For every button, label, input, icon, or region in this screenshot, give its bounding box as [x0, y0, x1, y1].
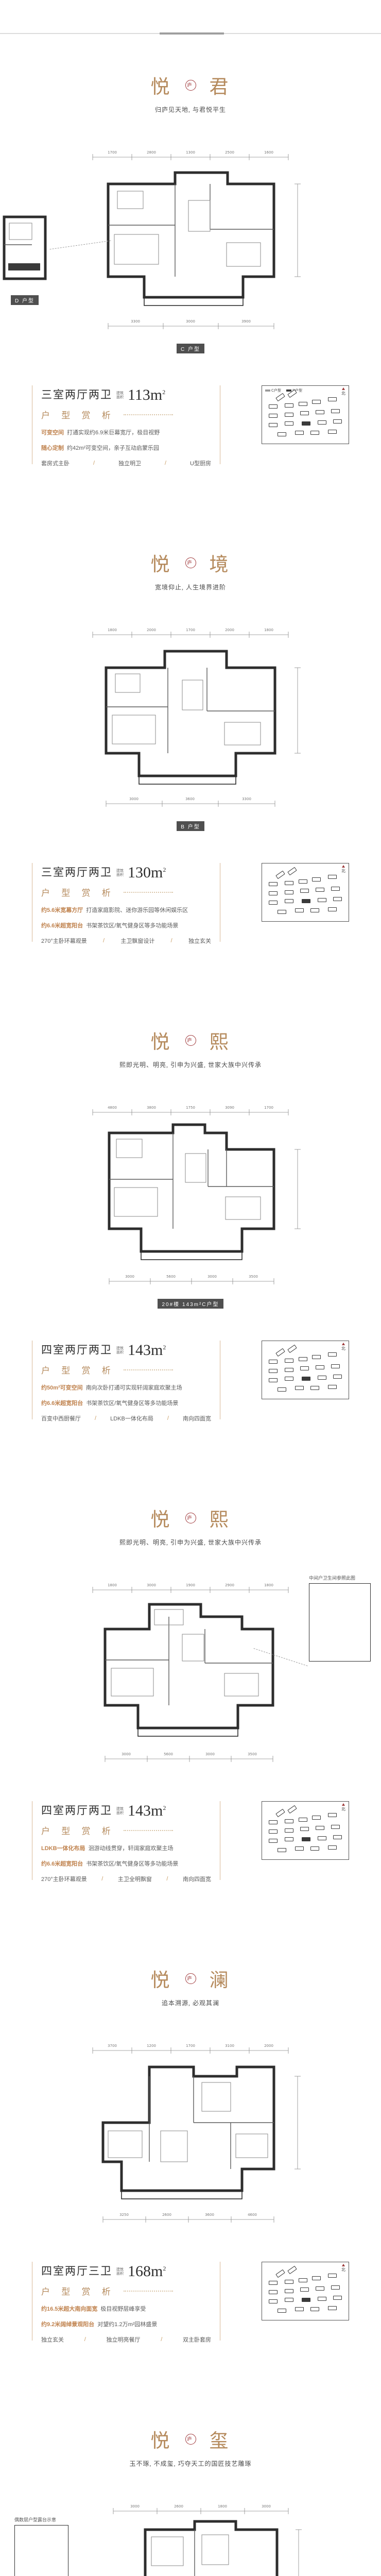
svg-text:3900: 3900 [241, 319, 251, 324]
building-icon [299, 879, 307, 884]
feature-line: 约16.5米超大南向面宽极目视野层峰享受 [41, 2304, 211, 2313]
svg-text:4600: 4600 [248, 2213, 257, 2217]
unit-area: 143m2 [128, 1801, 166, 1818]
building-icon [269, 1829, 278, 1834]
section-yuejun: 悦 庐 君 归庐见天地, 与君悦平生 D 户型 170 [0, 34, 381, 467]
feature-line: 约9.2米阔绰景观阳台对望约1.2万m²园林盛景 [41, 2320, 211, 2328]
building-icon [269, 2290, 278, 2294]
area-prefix: 建筑面积 [116, 392, 124, 402]
building-icon [310, 431, 319, 435]
building-icon [333, 2296, 342, 2300]
building-icon [285, 413, 293, 417]
building-icon [318, 1836, 326, 1840]
section-title: 悦 庐 澜 [0, 1964, 381, 1992]
svg-text:3000: 3000 [129, 797, 138, 801]
section-subtitle: 宽境仰止, 人生境界进阶 [0, 583, 381, 591]
svg-text:3000: 3000 [130, 2504, 140, 2509]
seal-icon: 庐 [185, 2434, 196, 2445]
title-char-2: 境 [210, 549, 231, 577]
building-icon [288, 1805, 298, 1814]
building-icon [285, 403, 293, 408]
building-icon [288, 2266, 298, 2274]
title-char-1: 悦 [151, 2425, 172, 2453]
seal-icon: 庐 [185, 557, 196, 568]
building-icon [288, 389, 298, 398]
tag-line: 套房式主卧/ 独立明卫/ U型厨房 [41, 459, 211, 467]
svg-text:3000: 3000 [207, 1275, 217, 1279]
building-icon [316, 2286, 324, 2291]
title-char-1: 悦 [151, 1504, 172, 1532]
building-icon [310, 1386, 319, 1390]
section-yuejing: 悦 庐 境 宽境仰止, 人生境界进阶 1800 2000 1700 2000 1… [0, 467, 381, 945]
svg-text:4800: 4800 [108, 1106, 117, 1110]
svg-text:1700: 1700 [186, 2044, 195, 2048]
title-char-2: 熙 [210, 1026, 231, 1054]
building-icon [285, 2298, 293, 2302]
building-icon [300, 411, 309, 415]
building-icon [318, 420, 326, 425]
svg-text:3500: 3500 [249, 1275, 258, 1279]
section-subtitle: 追本溯源, 必观其澜 [0, 1998, 381, 2007]
title-char-1: 悦 [151, 549, 172, 577]
building-icon [269, 1369, 278, 1373]
building-icon [275, 393, 285, 401]
svg-text:1750: 1750 [186, 1106, 195, 1110]
section-yuelan: 悦 庐 澜 追本溯源, 必观其澜 3700 1200 1700 3100 200… [0, 1883, 381, 2344]
svg-text:3700: 3700 [108, 2044, 117, 2048]
svg-text:3000: 3000 [186, 319, 195, 324]
title-char-2: 玺 [210, 2425, 231, 2453]
building-icon [328, 1813, 337, 1817]
seal-icon: 庐 [185, 80, 196, 91]
building-icons [262, 1802, 349, 1859]
svg-text:1800: 1800 [264, 1583, 273, 1587]
building-icon [299, 402, 307, 406]
building-icon [285, 1359, 293, 1363]
building-icon [295, 431, 304, 435]
building-icon [288, 1345, 298, 1353]
unit-spec: 四室两厅两卫 [41, 1802, 112, 1818]
building-icon [278, 1848, 286, 1852]
site-plan-box: 北 [262, 1341, 349, 1399]
building-icon [316, 1365, 324, 1369]
building-icon [316, 1826, 324, 1830]
unit-spec: 四室两厅两卫 [41, 1342, 112, 1357]
feature-line: 约5.6米宽幕方厅打造家庭影院、迷你游乐园等休闲娱乐区 [41, 906, 211, 914]
building-icon [285, 421, 293, 426]
svg-text:3100: 3100 [225, 2044, 234, 2048]
building-icon [269, 2299, 278, 2303]
analysis-heading: 户 型 赏 析 [41, 2284, 115, 2297]
section-subtitle: 玉不琢, 不成玺, 巧夺天工的国匠技艺雕琢 [0, 2459, 381, 2468]
plan-badge: 20#楼 143m²C户型 [158, 1299, 223, 1309]
title-char-1: 悦 [151, 71, 172, 99]
building-icon [328, 430, 337, 434]
building-icon [285, 890, 293, 894]
area-prefix: 建筑面积 [116, 2268, 124, 2278]
plan-badge-d: D 户型 [11, 295, 39, 305]
building-icons [262, 863, 349, 921]
building-icon [312, 877, 321, 882]
building-icon [288, 867, 298, 875]
site-plan-box: 北 [262, 2262, 349, 2320]
dotted-rule [124, 1829, 173, 1831]
building-icon [318, 2297, 326, 2301]
highlighted-building-icon [302, 2298, 310, 2302]
floorplan-drawing: 3000 2600 1800 3000 2800 [72, 2501, 309, 2576]
highlighted-building-icon [302, 899, 310, 903]
building-icons [262, 1341, 349, 1399]
unit-area: 168m2 [128, 2262, 166, 2278]
analysis-heading: 户 型 赏 析 [41, 886, 115, 899]
floorplan: D 户型 1700 2800 1300 2500 1600 [0, 147, 381, 353]
unit-area: 113m2 [128, 385, 165, 402]
building-icon [328, 1845, 337, 1850]
area-prefix: 建筑面积 [116, 1807, 124, 1818]
building-icon [333, 897, 342, 901]
building-icon [328, 397, 337, 401]
plan-badge-c: C 户型 [177, 344, 204, 353]
building-icon [299, 1357, 307, 1361]
building-icon [331, 887, 340, 891]
svg-text:3250: 3250 [119, 2213, 129, 2217]
svg-text:3600: 3600 [185, 797, 195, 801]
building-icon [312, 400, 321, 404]
svg-text:1800: 1800 [264, 628, 273, 632]
svg-text:2500: 2500 [225, 150, 234, 155]
analysis-heading: 户 型 赏 析 [41, 408, 115, 421]
seal-icon: 庐 [185, 1035, 196, 1046]
building-icon [269, 882, 278, 886]
section-yuexi-1: 悦 庐 熙 熙即光明、明亮, 引申为兴盛, 世家大族中兴传承 4800 3800… [0, 945, 381, 1422]
building-icon [312, 1355, 321, 1359]
building-icon [295, 1846, 304, 1851]
building-icon [275, 1348, 285, 1357]
section-subtitle: 归庐见天地, 与君悦平生 [0, 105, 381, 114]
building-icon [275, 1809, 285, 1817]
section-title: 悦 庐 境 [0, 549, 381, 577]
plan-badge-b: B 户型 [177, 821, 204, 831]
feature-line: LDKB一体化布局洄游动线贯穿，轩阔家庭欢聚主场 [41, 1844, 211, 1852]
building-icon [331, 1825, 340, 1829]
feature-line: 约50m²可变空间南向次卧打通可实现轩阔家庭欢聚主场 [41, 1383, 211, 1392]
building-icon [269, 1820, 278, 1824]
building-icon [278, 1387, 286, 1392]
tag-line: 百变中西厨餐厅/ LDKB一体化布局/ 南向四面宽 [41, 1414, 211, 1422]
building-icon [285, 1828, 293, 1833]
building-icon [295, 1386, 304, 1390]
highlighted-building-icon [302, 1377, 310, 1381]
building-icon [312, 1816, 321, 1820]
building-icon [278, 2309, 286, 2313]
unit-area: 130m2 [128, 863, 166, 879]
building-icon [275, 2269, 285, 2278]
building-icon [300, 889, 309, 893]
building-icon [285, 1368, 293, 1372]
section-title: 悦 庐 熙 [0, 1026, 381, 1054]
building-icon [269, 404, 278, 409]
building-icon [316, 888, 324, 892]
svg-text:5600: 5600 [164, 1752, 173, 1756]
building-icon [269, 901, 278, 905]
svg-text:1700: 1700 [108, 150, 117, 155]
building-icon [318, 1376, 326, 1380]
site-plan-box: 北 [262, 1801, 349, 1860]
building-icon [295, 2307, 304, 2311]
building-icon [310, 908, 319, 912]
floorplan-drawing: 4800 3800 1750 3090 1700 [72, 1102, 309, 1292]
section-yuexi-2: 悦 庐 熙 熙即光明、明亮, 引申为兴盛, 世家大族中兴传承 中间户卫生间参照此… [0, 1422, 381, 1883]
tag-line: 270°主卧环幕观景/ 主卫飘窗设计/ 独立玄关 [41, 937, 211, 945]
building-icon [285, 1837, 293, 1841]
svg-text:3300: 3300 [242, 797, 251, 801]
building-icon [275, 871, 285, 879]
building-icons [262, 386, 349, 444]
title-char-1: 悦 [151, 1026, 172, 1054]
analysis-heading: 户 型 赏 析 [41, 1824, 115, 1837]
building-icon [310, 1846, 319, 1851]
terrace-callout: 偶数层户型露台示意 [14, 2516, 68, 2576]
floorplan: 4800 3800 1750 3090 1700 [0, 1102, 381, 1309]
top-spacer [0, 0, 381, 33]
building-icon [328, 907, 337, 911]
svg-text:2000: 2000 [147, 628, 156, 632]
title-char-2: 澜 [210, 1964, 231, 1992]
building-icon [328, 2274, 337, 2278]
building-icon [269, 891, 278, 895]
dotted-rule [124, 1369, 173, 1370]
building-icon [299, 1818, 307, 1822]
building-icon [333, 1375, 342, 1379]
building-icon [269, 423, 278, 427]
svg-text:1700: 1700 [264, 1106, 273, 1110]
feature-line: 可变空间打通实现约6.9米巨幕宽厅，极目视野 [41, 428, 211, 436]
svg-text:1800: 1800 [108, 1583, 117, 1587]
svg-text:3300: 3300 [131, 319, 140, 324]
title-char-2: 君 [210, 71, 231, 99]
section-subtitle: 熙即光明、明亮, 引申为兴盛, 世家大族中兴传承 [0, 1538, 381, 1547]
unit-spec: 四室两厅三卫 [41, 2263, 112, 2278]
title-char-1: 悦 [151, 1964, 172, 1992]
building-icon [285, 899, 293, 903]
site-plan-box: C户型 D户型 北 [262, 385, 349, 444]
svg-text:3800: 3800 [147, 1106, 156, 1110]
building-icon [285, 1377, 293, 1381]
svg-text:2900: 2900 [225, 1583, 234, 1587]
floorplan-drawing: 1800 3000 1900 2900 1800 [72, 1580, 309, 1769]
building-icon [300, 2287, 309, 2292]
building-icon [310, 2307, 319, 2311]
feature-line: 约6.6米超宽阳台书架茶饮区/氧气健身区等多功能场景 [41, 921, 211, 929]
bathroom-callout: 中间户卫生间参照此图 [309, 1574, 371, 1662]
building-icon [331, 2285, 340, 2290]
building-icon [328, 1385, 337, 1389]
area-prefix: 建筑面积 [116, 869, 124, 879]
svg-text:1900: 1900 [186, 1583, 195, 1587]
svg-text:2600: 2600 [174, 2504, 183, 2509]
floorplan: 中间户卫生间参照此图 1800 3000 1900 2900 1800 [0, 1580, 381, 1769]
highlighted-building-icon [302, 1837, 310, 1841]
building-icon [328, 875, 337, 879]
building-icon [333, 1835, 342, 1839]
building-icon [328, 1352, 337, 1357]
mini-floorplan-d: D 户型 [1, 214, 48, 305]
building-icon [328, 2306, 337, 2310]
tag-line: 270°主卧环幕观景/ 主卫全明飘窗/ 南向四面宽 [41, 1875, 211, 1883]
svg-text:3000: 3000 [147, 1583, 156, 1587]
building-icon [285, 2280, 293, 2284]
building-icon [331, 1364, 340, 1368]
building-icon [269, 1839, 278, 1843]
section-title: 悦 庐 熙 [0, 1504, 381, 1532]
svg-text:1700: 1700 [186, 628, 195, 632]
seal-icon: 庐 [185, 1973, 196, 1984]
area-prefix: 建筑面积 [116, 1347, 124, 1357]
floorplan-drawing: 3700 1200 1700 3100 2000 [72, 2040, 309, 2230]
svg-text:3000: 3000 [122, 1752, 131, 1756]
svg-text:3000: 3000 [262, 2504, 271, 2509]
floorplan: 1800 2000 1700 2000 1800 [0, 624, 381, 831]
building-icon [269, 1360, 278, 1364]
building-icon [285, 1819, 293, 1823]
building-icon [278, 910, 286, 914]
building-icon [295, 908, 304, 912]
building-icon [316, 410, 324, 414]
section-title: 悦 庐 君 [0, 71, 381, 99]
svg-text:5600: 5600 [166, 1275, 176, 1279]
building-icon [300, 1366, 309, 1370]
svg-text:3090: 3090 [225, 1106, 234, 1110]
dotted-rule [124, 414, 173, 415]
building-icon [300, 1827, 309, 1831]
highlighted-building-icon [302, 421, 310, 426]
svg-text:2600: 2600 [162, 2213, 171, 2217]
svg-text:3500: 3500 [248, 1752, 257, 1756]
building-icon [312, 2276, 321, 2280]
building-icons [262, 2262, 349, 2320]
feature-line: 约6.6米超宽阳台书架茶饮区/氧气健身区等多功能场景 [41, 1399, 211, 1407]
svg-text:1300: 1300 [186, 150, 195, 155]
building-icon [278, 432, 286, 436]
building-icon [318, 898, 326, 902]
building-icon [299, 2278, 307, 2282]
feature-line: 约6.6米超宽阳台书架茶饮区/氧气健身区等多功能场景 [41, 1859, 211, 1868]
analysis-heading: 户 型 赏 析 [41, 1363, 115, 1376]
floorplan: 3700 1200 1700 3100 2000 [0, 2040, 381, 2230]
section-title: 悦 庐 玺 [0, 2425, 381, 2453]
floorplan-drawing: 1800 2000 1700 2000 1800 [72, 624, 309, 814]
unit-area: 143m2 [128, 1341, 166, 1357]
title-char-2: 熙 [210, 1504, 231, 1532]
dotted-rule [124, 2290, 173, 2292]
building-icon [285, 2289, 293, 2293]
section-subtitle: 熙即光明、明亮, 引申为兴盛, 世家大族中兴传承 [0, 1060, 381, 1069]
building-icon [269, 1378, 278, 1382]
svg-text:1800: 1800 [108, 628, 117, 632]
seal-icon: 庐 [185, 1513, 196, 1523]
svg-text:1600: 1600 [264, 150, 273, 155]
svg-text:2800: 2800 [147, 150, 156, 155]
dotted-rule [124, 891, 173, 893]
feature-line: 随心定制约42m²可变空间，亲子互动启蒙乐园 [41, 444, 211, 452]
svg-text:2000: 2000 [264, 2044, 273, 2048]
building-icon [331, 409, 340, 413]
unit-spec: 三室两厅两卫 [41, 386, 112, 402]
site-plan-box: 北 [262, 863, 349, 922]
svg-text:1200: 1200 [147, 2044, 156, 2048]
tag-line: 独立玄关/ 独立明亮餐厅/ 双主卧套房 [41, 2335, 211, 2344]
building-icon [269, 2281, 278, 2285]
floorplan-drawing: 1700 2800 1300 2500 1600 [72, 147, 309, 336]
svg-text:3600: 3600 [205, 2213, 214, 2217]
svg-text:3000: 3000 [205, 1752, 215, 1756]
section-yuexi-seal: 悦 庐 玺 玉不琢, 不成玺, 巧夺天工的国匠技艺雕琢 偶数层户型露台示意 30… [0, 2344, 381, 2576]
svg-text:3000: 3000 [125, 1275, 134, 1279]
building-icon [285, 881, 293, 885]
unit-spec: 三室两厅两卫 [41, 864, 112, 879]
building-icon [269, 414, 278, 418]
building-icon [333, 419, 342, 423]
svg-text:2000: 2000 [225, 628, 234, 632]
svg-text:1800: 1800 [218, 2504, 227, 2509]
floorplan: 偶数层户型露台示意 3000 2600 1800 3000 [0, 2501, 381, 2576]
